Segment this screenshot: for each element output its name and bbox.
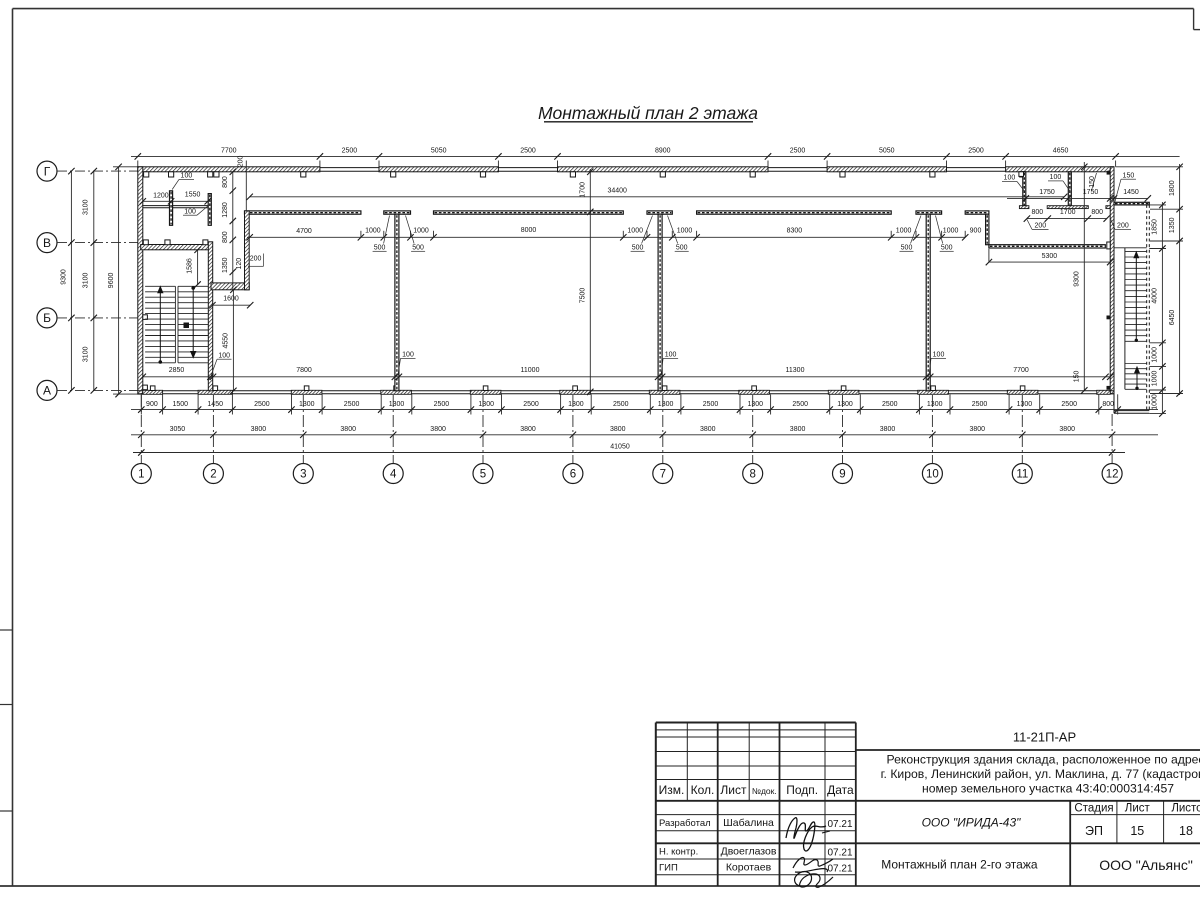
svg-text:2500: 2500 [790, 148, 806, 155]
svg-text:Кол.: Кол. [691, 783, 715, 797]
svg-text:800: 800 [1102, 401, 1114, 408]
svg-text:34400: 34400 [607, 188, 627, 195]
svg-text:500: 500 [676, 245, 688, 252]
svg-text:2500: 2500 [968, 148, 984, 155]
svg-text:ГИП: ГИП [659, 862, 678, 873]
svg-text:3050: 3050 [170, 426, 186, 433]
svg-text:4: 4 [390, 469, 397, 481]
svg-text:4700: 4700 [296, 228, 312, 235]
svg-text:4650: 4650 [1053, 148, 1069, 155]
svg-text:Шабалина: Шабалина [723, 817, 774, 829]
svg-text:Монтажный план 2 этажа: Монтажный план 2 этажа [538, 103, 758, 123]
svg-text:3800: 3800 [970, 426, 986, 433]
svg-text:Н. контр.: Н. контр. [659, 847, 698, 858]
svg-text:120: 120 [236, 258, 243, 270]
svg-text:200: 200 [1034, 223, 1046, 230]
svg-text:41050: 41050 [610, 444, 630, 451]
svg-text:500: 500 [374, 245, 386, 252]
svg-text:Б: Б [43, 311, 51, 325]
svg-text:1300: 1300 [389, 401, 405, 408]
svg-text:100: 100 [1050, 174, 1062, 181]
svg-text:9600: 9600 [108, 273, 115, 289]
svg-text:11000: 11000 [521, 367, 540, 374]
svg-text:150: 150 [1123, 172, 1135, 179]
svg-text:100: 100 [181, 173, 193, 180]
svg-text:1300: 1300 [299, 401, 315, 408]
svg-text:Монтажный план 2-го этажа: Монтажный план 2-го этажа [881, 858, 1038, 872]
svg-text:8: 8 [749, 469, 755, 481]
svg-text:1850: 1850 [1152, 219, 1159, 235]
svg-text:Подп.: Подп. [786, 783, 818, 797]
svg-text:Коротаев: Коротаев [726, 861, 772, 873]
svg-text:ООО "Альянс": ООО "Альянс" [1099, 857, 1193, 873]
svg-text:2: 2 [210, 469, 216, 481]
svg-text:1350: 1350 [222, 257, 229, 273]
svg-text:Разработал: Разработал [659, 818, 711, 829]
svg-text:2500: 2500 [520, 148, 536, 155]
svg-text:1750: 1750 [1039, 189, 1055, 196]
svg-text:Г: Г [44, 164, 51, 178]
svg-text:8300: 8300 [787, 227, 803, 234]
svg-text:3: 3 [300, 469, 306, 481]
svg-text:номер земельного участка 43:40: номер земельного участка 43:40:000314:45… [922, 781, 1174, 795]
svg-text:100: 100 [1004, 175, 1016, 182]
svg-text:2500: 2500 [1061, 401, 1077, 408]
svg-text:500: 500 [632, 245, 644, 252]
svg-text:2500: 2500 [882, 401, 898, 408]
svg-text:1300: 1300 [478, 401, 494, 408]
svg-text:800: 800 [1031, 209, 1043, 216]
svg-text:ЭП: ЭП [1085, 824, 1103, 838]
svg-text:07.21: 07.21 [827, 819, 852, 830]
svg-text:3800: 3800 [1059, 426, 1075, 433]
svg-text:900: 900 [146, 401, 158, 408]
svg-text:11: 11 [1016, 469, 1028, 481]
svg-text:7700: 7700 [221, 148, 237, 155]
svg-text:2500: 2500 [972, 401, 988, 408]
svg-text:9: 9 [839, 469, 845, 481]
svg-text:3800: 3800 [251, 426, 267, 433]
svg-text:2500: 2500 [792, 401, 808, 408]
svg-text:№док.: №док. [752, 786, 777, 796]
svg-text:1300: 1300 [927, 401, 943, 408]
svg-text:100: 100 [665, 352, 677, 359]
svg-text:1000: 1000 [1152, 394, 1159, 410]
svg-text:9300: 9300 [60, 269, 67, 285]
svg-text:Стадия: Стадия [1074, 803, 1113, 815]
svg-text:3800: 3800 [610, 426, 626, 433]
svg-text:800: 800 [1091, 209, 1103, 216]
svg-text:1200: 1200 [153, 192, 169, 199]
svg-text:150: 150 [1074, 370, 1081, 382]
svg-text:8900: 8900 [655, 148, 671, 155]
svg-text:1800: 1800 [1169, 180, 1176, 196]
svg-text:2500: 2500 [523, 401, 539, 408]
svg-text:5300: 5300 [1042, 253, 1058, 260]
svg-text:12: 12 [1106, 469, 1119, 481]
svg-text:8000: 8000 [521, 227, 537, 234]
svg-text:3800: 3800 [790, 426, 806, 433]
svg-text:7800: 7800 [296, 367, 312, 374]
svg-text:100: 100 [933, 352, 945, 359]
svg-text:5050: 5050 [431, 148, 447, 155]
svg-text:100: 100 [184, 208, 196, 215]
svg-text:4000: 4000 [1152, 288, 1159, 304]
svg-text:1300: 1300 [568, 401, 584, 408]
svg-text:15: 15 [1130, 824, 1144, 838]
svg-text:3800: 3800 [430, 426, 446, 433]
svg-text:07.21: 07.21 [827, 863, 852, 874]
svg-text:2500: 2500 [434, 401, 450, 408]
svg-text:1000: 1000 [1152, 371, 1159, 387]
svg-text:1700: 1700 [1060, 209, 1076, 216]
svg-text:100: 100 [402, 352, 414, 359]
svg-text:200: 200 [1117, 223, 1129, 230]
svg-text:1300: 1300 [748, 401, 764, 408]
svg-text:1450: 1450 [1123, 189, 1139, 196]
svg-text:1000: 1000 [365, 227, 381, 234]
svg-text:4550: 4550 [223, 333, 230, 349]
svg-text:2500: 2500 [703, 401, 719, 408]
svg-text:Изм.: Изм. [659, 783, 685, 797]
svg-text:1000: 1000 [677, 227, 693, 234]
svg-text:2500: 2500 [254, 401, 270, 408]
svg-text:Листов: Листов [1171, 803, 1200, 815]
svg-text:11-21П-АР: 11-21П-АР [1013, 730, 1076, 745]
svg-text:3800: 3800 [700, 426, 716, 433]
svg-text:1750: 1750 [1083, 189, 1099, 196]
svg-text:7: 7 [660, 469, 666, 481]
svg-text:Реконструкция здания склада, р: Реконструкция здания склада, расположенн… [887, 753, 1200, 767]
svg-text:200: 200 [238, 155, 245, 167]
svg-text:1000: 1000 [1152, 347, 1159, 363]
svg-text:Дата: Дата [827, 783, 854, 797]
svg-text:1450: 1450 [207, 401, 223, 408]
svg-text:1300: 1300 [837, 401, 853, 408]
svg-text:1586: 1586 [186, 258, 193, 274]
svg-text:Лист: Лист [1125, 803, 1151, 815]
svg-text:7700: 7700 [1013, 367, 1029, 374]
svg-text:3800: 3800 [520, 426, 536, 433]
svg-text:1000: 1000 [896, 227, 912, 234]
svg-text:1000: 1000 [413, 227, 429, 234]
svg-text:200: 200 [250, 256, 262, 263]
svg-text:3800: 3800 [340, 426, 356, 433]
svg-text:1000: 1000 [627, 227, 643, 234]
svg-text:1700: 1700 [580, 182, 587, 198]
svg-text:1: 1 [138, 469, 144, 481]
svg-text:11300: 11300 [786, 367, 805, 374]
svg-text:1300: 1300 [1017, 401, 1033, 408]
svg-text:ООО "ИРИДА-43": ООО "ИРИДА-43" [922, 815, 1022, 829]
svg-text:2500: 2500 [613, 401, 629, 408]
svg-text:1500: 1500 [173, 401, 189, 408]
svg-text:1000: 1000 [943, 227, 959, 234]
svg-text:3100: 3100 [83, 346, 90, 362]
svg-text:г. Киров, Ленинский район, ул.: г. Киров, Ленинский район, ул. Маклина, … [881, 767, 1200, 781]
svg-text:3100: 3100 [83, 273, 90, 289]
svg-text:2850: 2850 [169, 367, 185, 374]
svg-text:100: 100 [218, 352, 230, 359]
svg-text:3100: 3100 [83, 199, 90, 215]
svg-text:1300: 1300 [658, 401, 674, 408]
svg-text:5: 5 [480, 469, 486, 481]
svg-text:500: 500 [412, 245, 424, 252]
svg-text:18: 18 [1179, 824, 1193, 838]
svg-text:9300: 9300 [1074, 271, 1081, 287]
svg-text:07.21: 07.21 [827, 848, 852, 859]
svg-text:800: 800 [222, 231, 229, 243]
svg-text:900: 900 [970, 227, 982, 234]
svg-text:6: 6 [570, 469, 576, 481]
svg-text:7500: 7500 [580, 288, 587, 304]
svg-text:1280: 1280 [222, 202, 229, 218]
svg-text:6450: 6450 [1169, 310, 1176, 326]
svg-text:2500: 2500 [344, 401, 360, 408]
svg-text:2500: 2500 [342, 148, 358, 155]
svg-text:10: 10 [926, 469, 939, 481]
svg-text:1550: 1550 [185, 192, 201, 199]
svg-text:5050: 5050 [879, 148, 895, 155]
svg-text:А: А [43, 384, 51, 398]
svg-text:500: 500 [941, 245, 953, 252]
svg-text:В: В [43, 236, 51, 250]
svg-text:1350: 1350 [1169, 217, 1176, 233]
svg-text:800: 800 [222, 176, 229, 188]
svg-text:Лист: Лист [720, 783, 747, 797]
svg-text:3800: 3800 [880, 426, 896, 433]
svg-text:500: 500 [901, 245, 913, 252]
svg-text:Двоеглазов: Двоеглазов [721, 846, 777, 858]
svg-text:1600: 1600 [223, 296, 239, 303]
